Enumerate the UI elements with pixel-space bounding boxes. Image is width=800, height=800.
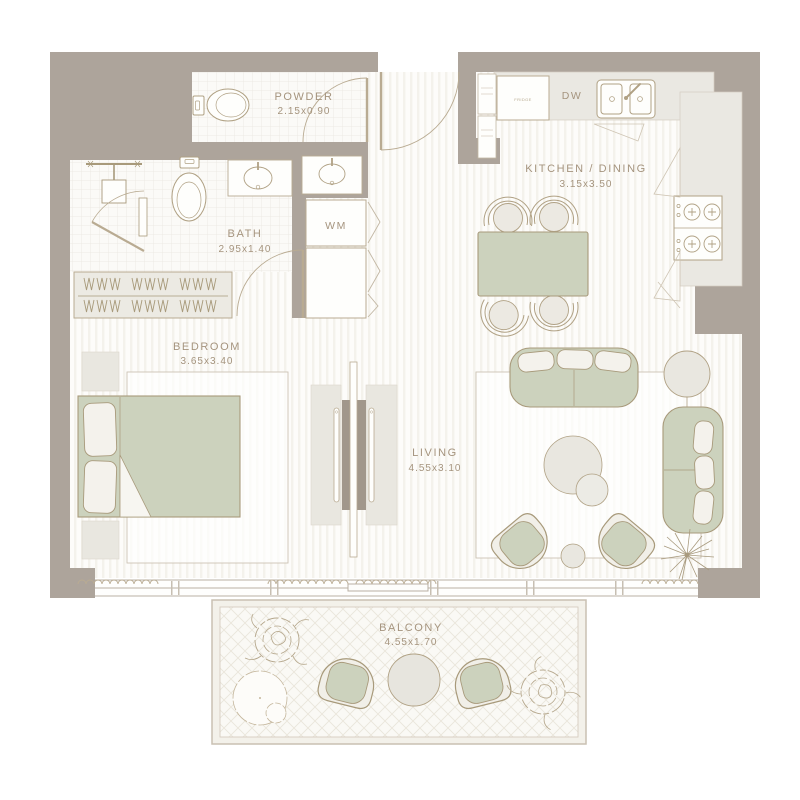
bed — [78, 396, 240, 517]
wm-label: WM — [325, 220, 347, 232]
bath-sink — [228, 160, 292, 196]
dining-table — [478, 232, 588, 296]
powder-label: POWDER — [274, 91, 333, 103]
sofa-side — [663, 407, 723, 533]
bedroom-label: BEDROOM — [173, 341, 241, 353]
powder-sink — [302, 156, 362, 194]
balcony-plant-bottom-left — [233, 671, 287, 725]
nightstand-bottom — [82, 521, 119, 559]
pantry-cabinet — [478, 74, 496, 158]
tv-right — [356, 400, 366, 510]
shower-glass-panel — [139, 198, 147, 236]
wardrobe — [74, 272, 232, 318]
kitchen-label: KITCHEN / DINING — [525, 163, 647, 175]
sofa-main — [510, 348, 638, 407]
side-table — [664, 351, 710, 397]
kitchen-dims: 3.15x3.50 — [560, 179, 613, 190]
kitchen-sink — [597, 80, 655, 118]
living-label: LIVING — [412, 447, 458, 459]
living-dims: 4.55x3.10 — [409, 463, 462, 474]
bedroom-dims: 3.65x3.40 — [181, 356, 234, 367]
bath-dims: 2.95x1.40 — [219, 244, 272, 255]
bedroom: BEDROOM 3.65x3.40 — [78, 341, 288, 563]
floor-plan: FRIDGE DW — [0, 0, 800, 800]
balcony-dims: 4.55x1.70 — [385, 637, 438, 648]
fridge-label: FRIDGE — [514, 97, 532, 102]
tv-partition — [350, 362, 357, 557]
linen-closet — [306, 248, 366, 318]
accent-side-table — [561, 544, 585, 568]
floor-plan-page: FRIDGE DW — [0, 0, 800, 800]
balcony-label: BALCONY — [379, 622, 443, 634]
fridge: FRIDGE — [497, 76, 549, 120]
balcony-table — [388, 654, 440, 706]
dishwasher-label: DW — [562, 90, 583, 102]
bath-label: BATH — [228, 228, 263, 240]
nightstand-top — [82, 352, 119, 391]
powder-dims: 2.15x0.90 — [278, 106, 331, 117]
coffee-table-small — [576, 474, 608, 506]
hob — [674, 196, 722, 260]
balcony-sliding-door — [348, 584, 428, 591]
